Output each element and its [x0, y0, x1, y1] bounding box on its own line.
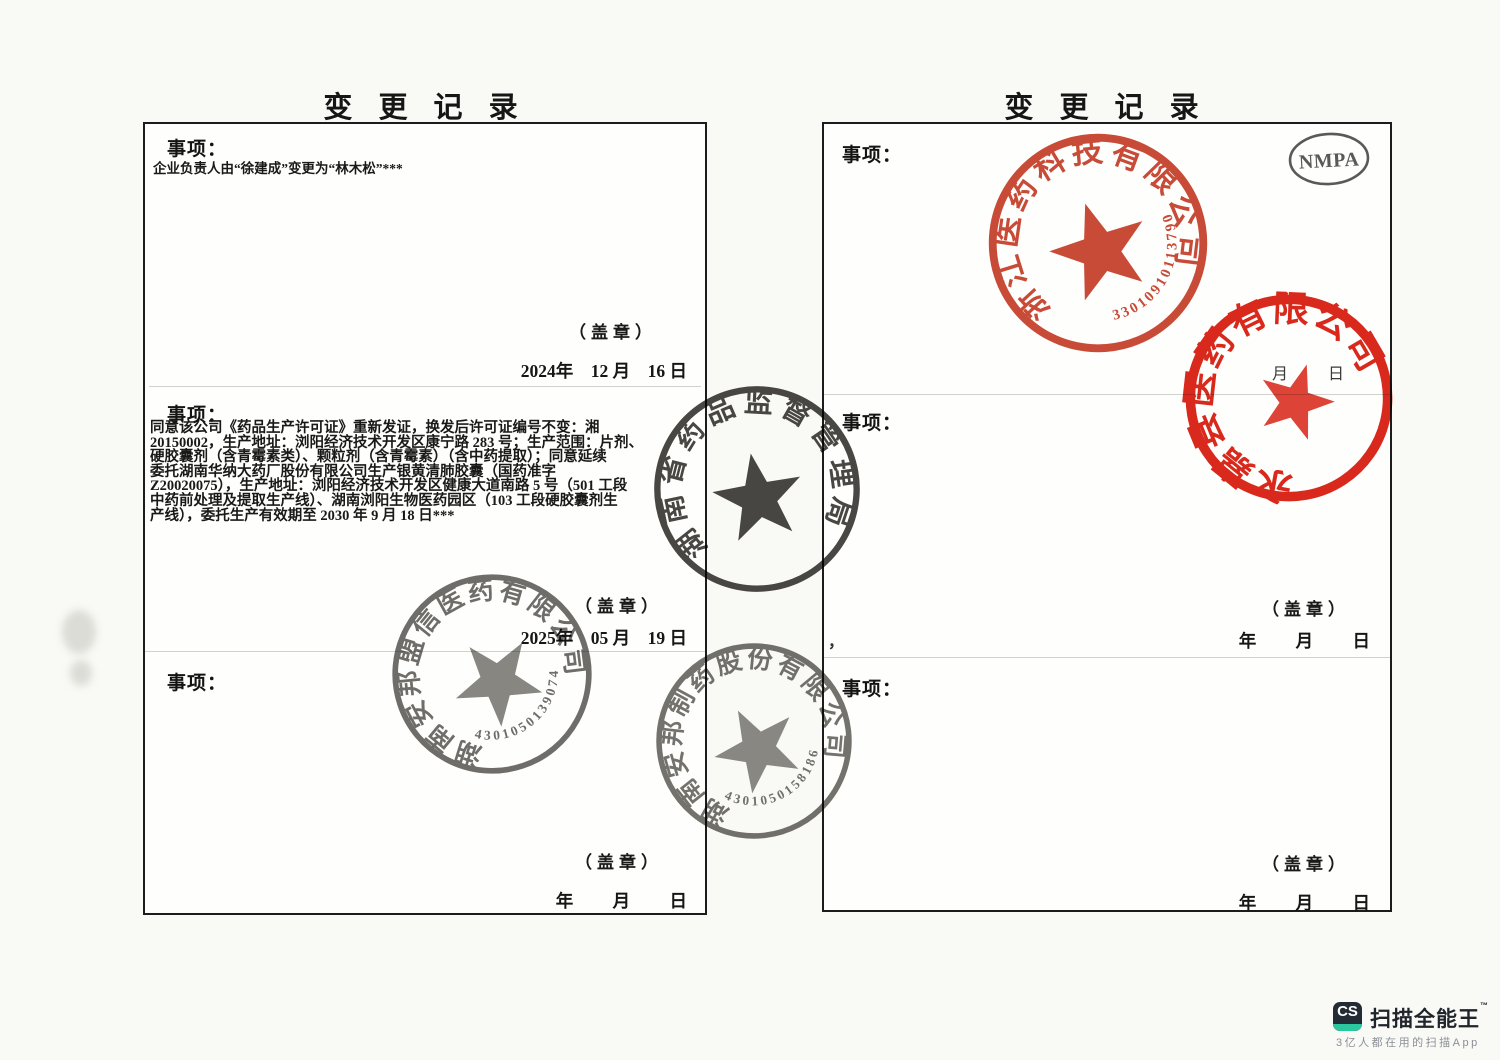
scan-smudge [62, 610, 96, 654]
watermark-title-text: 扫描全能王 [1370, 1008, 1480, 1031]
body-line: 20150002，生产地址：浏阳经济技术开发区康宁路 283 号；生产范围：片剂… [150, 436, 643, 451]
right-item3-seal-hint: （盖章） [1262, 850, 1350, 875]
left-item3-label: 事项： [167, 668, 227, 695]
left-item3-seal-hint: （盖章） [575, 848, 663, 873]
star-icon [1241, 349, 1343, 452]
left-item3-date: 年 月 日 [556, 888, 687, 913]
left-item2-seal-hint: （盖章） [575, 592, 663, 617]
watermark-subtitle: 3亿人都在用的扫描App [1336, 1034, 1480, 1050]
scan-smudge [70, 660, 92, 686]
right-page-title: 变 更 记 录 [826, 84, 1386, 126]
watermark-title: 扫描全能王™ [1370, 1003, 1489, 1033]
stray-comma-mark: ， [828, 628, 844, 652]
body-line: 同意该公司《药品生产许可证》重新发证，换发后许可证编号不变：湘 [150, 421, 643, 436]
left-item1-seal-hint: （盖章） [569, 318, 657, 343]
body-line: 硬胶囊剂（含青霉素类）、颗粒剂（含青霉素）（含中药提取）；同意延续 [150, 450, 643, 465]
cs-logo-letters: CS [1333, 1003, 1362, 1020]
body-line: Z20020075），生产地址：浏阳经济技术开发区健康大道南路 5 号（501 … [150, 479, 643, 494]
right-item3-date: 年 月 日 [1239, 890, 1370, 915]
section-divider [149, 386, 701, 387]
right-item1-label: 事项： [842, 140, 902, 167]
left-item2-body: 同意该公司《药品生产许可证》重新发证，换发后许可证编号不变：湘 20150002… [150, 421, 643, 523]
camscanner-watermark: CS 扫描全能王™ 3亿人都在用的扫描App [1328, 1000, 1488, 1050]
star-icon [1039, 188, 1161, 306]
camscanner-logo: CS [1333, 1002, 1362, 1031]
stamp-hunan-mpa: 湖南省药品监督管理局 [634, 366, 880, 612]
star-icon [707, 446, 809, 544]
watermark-tm: ™ [1480, 1001, 1489, 1010]
left-page: 事项： 企业负责人由“徐建成”变更为“林木松”*** （盖章） 2024年 12… [143, 122, 707, 915]
nmpa-label: NMPA [1298, 148, 1360, 173]
nmpa-seal: NMPA [1285, 128, 1374, 190]
left-item1-date: 2024年 12 月 16 日 [521, 358, 687, 383]
right-item2-seal-hint: （盖章） [1262, 595, 1350, 620]
left-item1-label: 事项： [167, 134, 227, 161]
right-item3-label: 事项： [842, 674, 902, 701]
body-line: 产线），委托生产有效期至 2030 年 9 月 18 日*** [150, 509, 643, 524]
left-item1-body: 企业负责人由“徐建成”变更为“林木松”*** [153, 160, 403, 177]
right-item2-date: 年 月 日 [1239, 628, 1370, 653]
left-page-title: 变 更 记 录 [145, 84, 705, 126]
section-divider [824, 657, 1390, 658]
body-line: 中药前处理及提取生产线）、湖南浏阳生物医药园区（103 工段硬胶囊剂生 [150, 494, 643, 509]
cs-logo-swoosh [1333, 1024, 1362, 1031]
